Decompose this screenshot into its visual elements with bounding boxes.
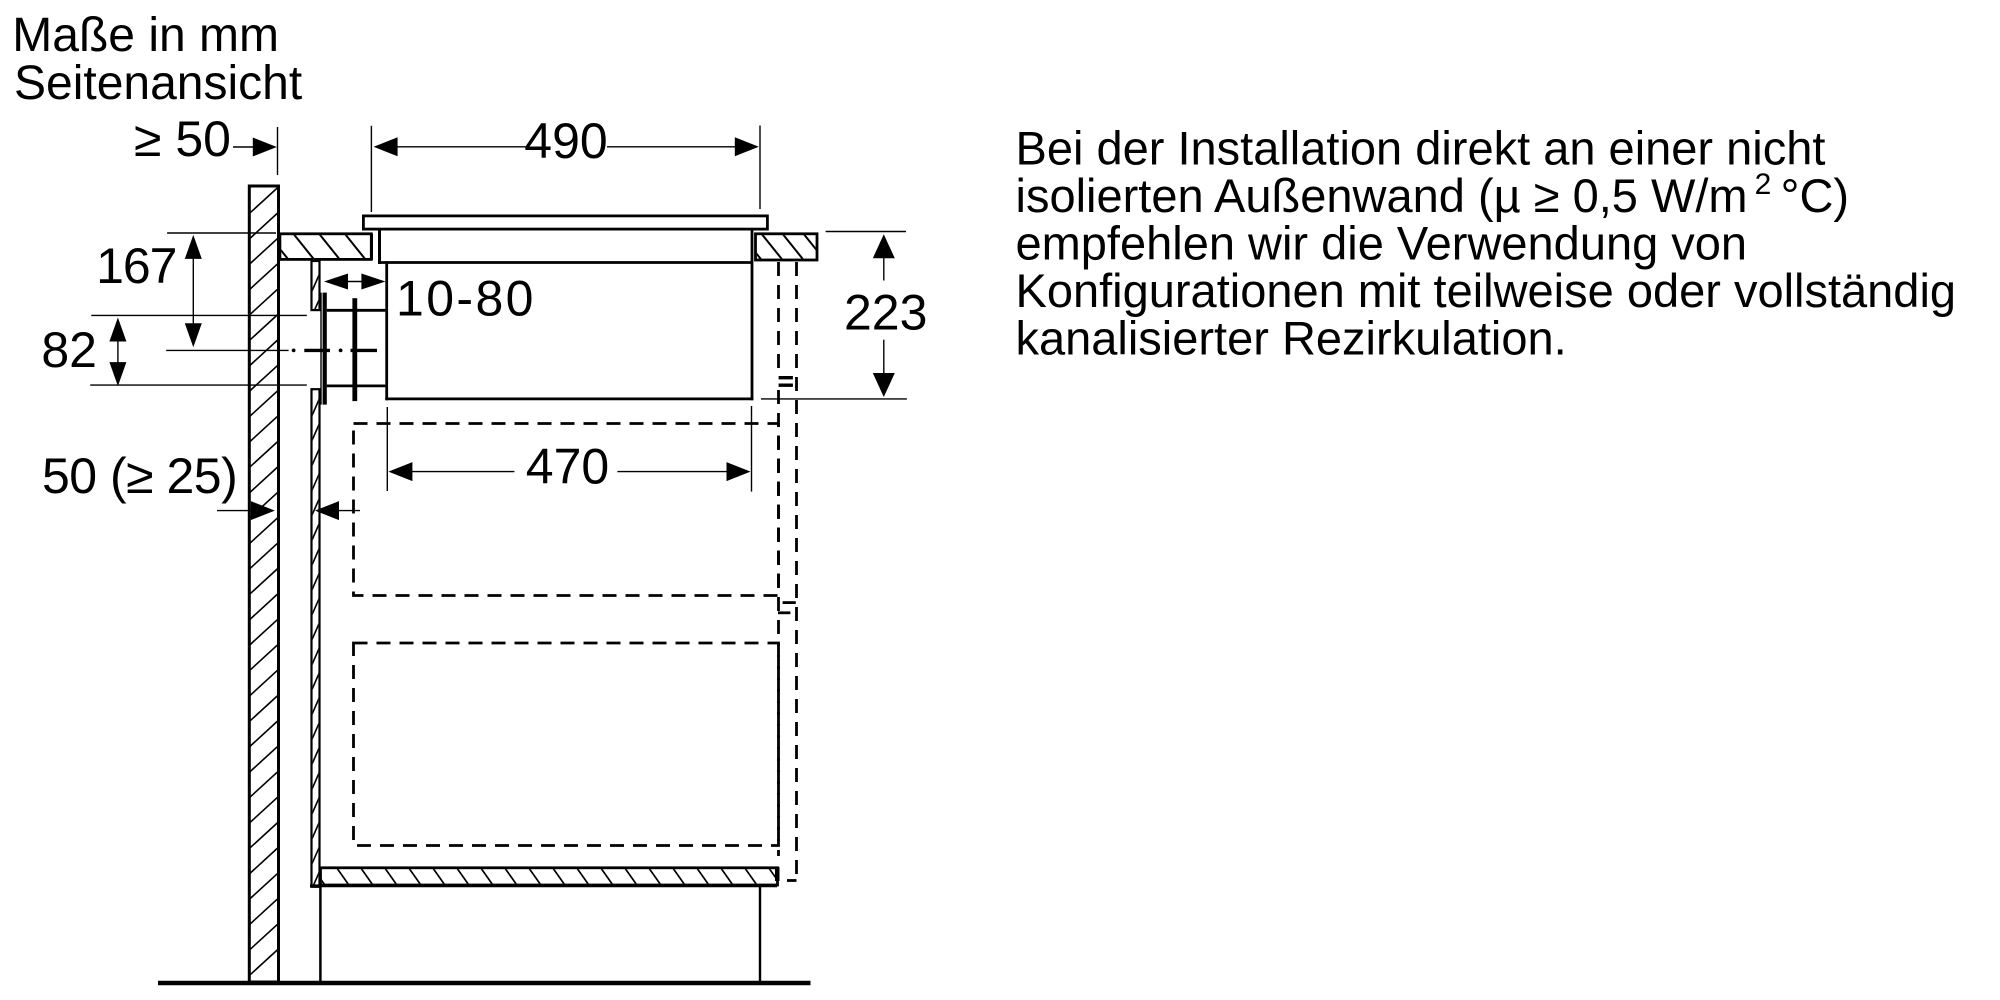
svg-text:167: 167 (96, 238, 176, 294)
svg-text:10-80: 10-80 (396, 270, 536, 326)
svg-text:50 (≥ 25): 50 (≥ 25) (42, 448, 237, 504)
svg-text:empfehlen wir die Verwendung v: empfehlen wir die Verwendung von (1016, 217, 1748, 270)
svg-text:470: 470 (526, 439, 609, 495)
svg-text:Bei der Installation direkt an: Bei der Installation direkt an einer nic… (1016, 122, 1826, 175)
svg-text:Seitenansicht: Seitenansicht (14, 57, 302, 110)
svg-text:≥ 50: ≥ 50 (134, 111, 231, 167)
svg-text:82: 82 (41, 322, 97, 378)
svg-text:490: 490 (524, 113, 607, 169)
svg-text:isolierten Außenwand (µ ≥ 0,5: isolierten Außenwand (µ ≥ 0,5 W/m2 °C) (1016, 168, 1850, 222)
svg-text:223: 223 (844, 285, 927, 341)
svg-text:Maße in mm: Maße in mm (12, 9, 279, 62)
svg-text:kanalisierter Rezirkulation.: kanalisierter Rezirkulation. (1016, 312, 1567, 365)
svg-text:Konfigurationen mit teilweise: Konfigurationen mit teilweise oder volls… (1016, 264, 1957, 317)
